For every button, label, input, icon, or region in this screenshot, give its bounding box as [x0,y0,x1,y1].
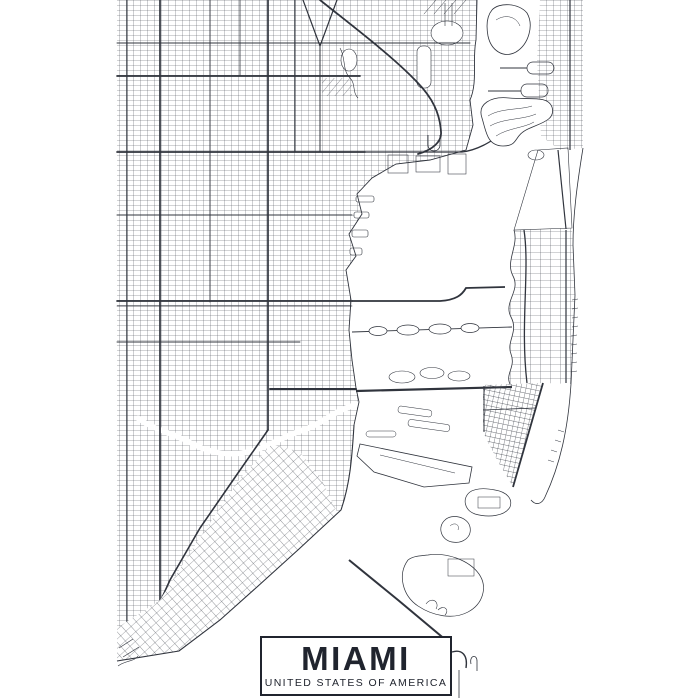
poster-subtitle: UNITED STATES OF AMERICA [265,677,448,689]
map-poster: MIAMI UNITED STATES OF AMERICA [0,0,700,700]
miami-street-map-graphic [0,0,700,700]
title-box: MIAMI UNITED STATES OF AMERICA [260,636,452,696]
poster-title: MIAMI [301,643,411,674]
port-of-miami [357,444,472,487]
